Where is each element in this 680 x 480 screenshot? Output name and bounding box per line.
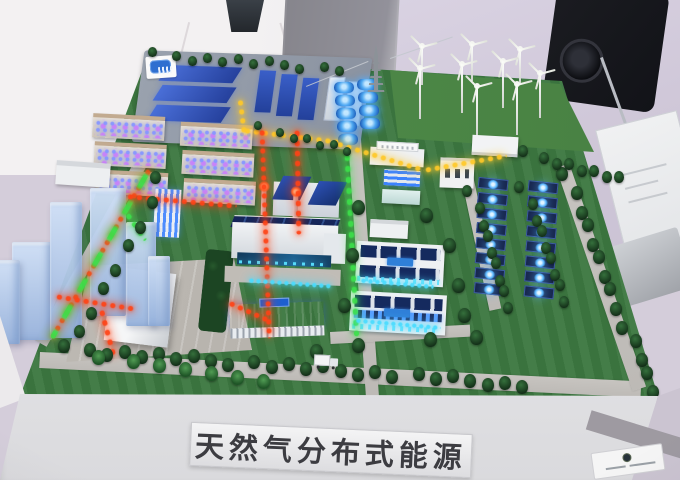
solar-panel <box>524 270 555 284</box>
warehouse-roof <box>254 70 276 112</box>
warehouse-front <box>230 325 324 338</box>
truck <box>314 353 341 370</box>
chimney-stack <box>261 187 267 215</box>
solar-panel <box>527 195 558 209</box>
gate-windows <box>445 169 469 179</box>
solar-panel <box>528 180 559 194</box>
blue-warehouse <box>229 301 324 340</box>
maker-logo-icon <box>622 453 632 463</box>
glowing-windows <box>182 128 251 148</box>
solar-panel <box>476 222 507 236</box>
plant-glass-facade <box>237 252 331 267</box>
residential-block <box>92 113 165 141</box>
city-tower <box>50 202 82 338</box>
chimney-stack <box>293 192 299 220</box>
energy-center-b <box>349 291 447 336</box>
maker-text-line <box>606 465 626 470</box>
solar-panel <box>475 252 506 266</box>
solar-panel <box>525 240 556 254</box>
warehouse-sign <box>259 298 289 308</box>
solar-panel <box>476 207 507 221</box>
solar-panel-field <box>459 172 588 315</box>
gate-station <box>439 157 474 188</box>
sheet-text-line <box>622 163 667 176</box>
solar-panel <box>474 267 505 281</box>
building-sign <box>387 257 413 266</box>
labelled-building <box>370 147 425 168</box>
admin-building <box>370 219 409 239</box>
energy-center-a <box>355 241 445 288</box>
park-logo-icon <box>150 59 172 73</box>
city-skyline <box>0 178 190 358</box>
power-plant <box>224 170 354 300</box>
solar-panel <box>477 192 508 206</box>
solar-panel <box>526 225 557 239</box>
solar-panel <box>474 282 505 296</box>
solar-panel <box>475 237 506 251</box>
gas-station-building <box>472 135 519 157</box>
warehouse-roof <box>276 74 298 116</box>
teal-building <box>382 189 421 205</box>
sheet-text-line <box>628 192 667 204</box>
speaker-cone-icon <box>557 36 607 86</box>
solar-panel <box>524 285 555 299</box>
city-tower <box>148 256 170 326</box>
warehouse-roof <box>153 85 237 103</box>
blue-striped-building <box>384 169 421 187</box>
maker-text-line <box>629 461 655 467</box>
plant-apron <box>224 266 340 286</box>
residential-block <box>180 122 253 150</box>
white-shed <box>343 81 365 125</box>
glowing-windows <box>94 119 163 139</box>
white-shed <box>323 77 345 121</box>
solar-panel <box>478 177 509 191</box>
truck-box <box>314 354 331 366</box>
truck-wheel <box>317 365 320 368</box>
solar-panel <box>526 210 557 224</box>
city-tower <box>90 188 126 316</box>
building-sign <box>376 141 418 152</box>
solar-panel <box>525 255 556 269</box>
building-sign <box>384 308 410 317</box>
truck-wheel <box>332 366 335 369</box>
sheet-text-line <box>625 180 658 190</box>
model-photo-scene: 天然气分布式能源 <box>0 0 680 480</box>
park-logo-slats <box>158 66 171 74</box>
truck-cab <box>330 358 338 366</box>
park-logo-card <box>145 55 176 79</box>
